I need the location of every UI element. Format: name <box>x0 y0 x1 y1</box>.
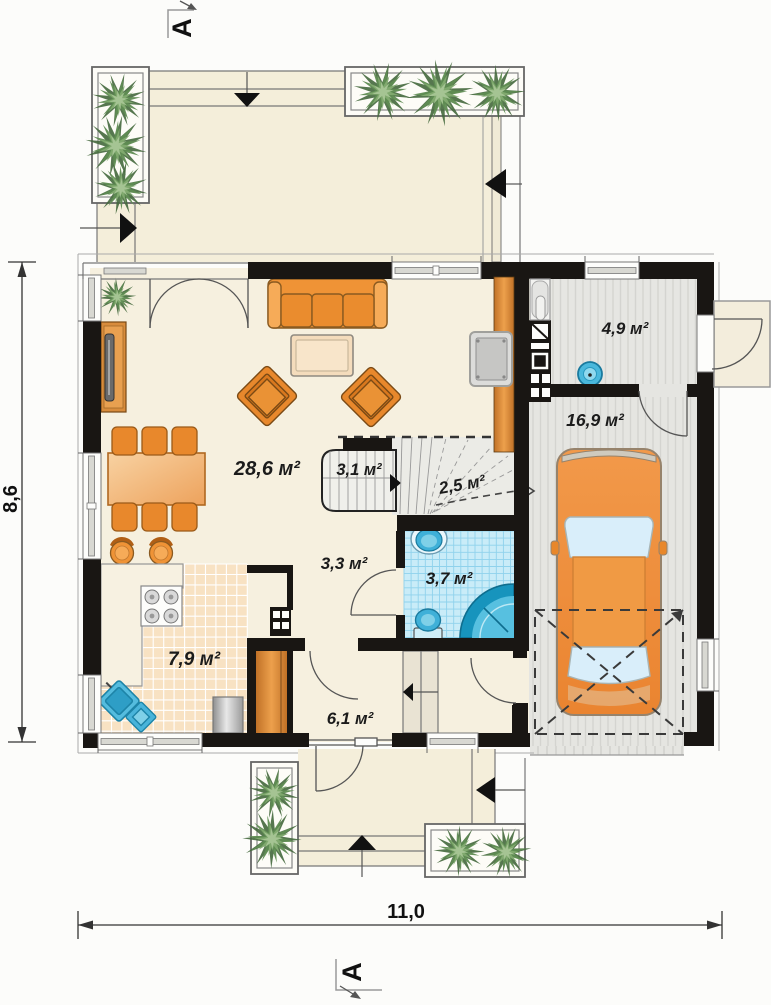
svg-text:A: A <box>337 962 367 982</box>
svg-text:3,3 м²: 3,3 м² <box>321 554 369 573</box>
svg-text:16,9 м²: 16,9 м² <box>566 410 625 430</box>
svg-text:7,9 м²: 7,9 м² <box>168 649 221 670</box>
svg-text:6,1 м²: 6,1 м² <box>327 709 375 728</box>
svg-text:3,7 м²: 3,7 м² <box>426 569 474 588</box>
svg-text:8,6: 8,6 <box>0 485 22 513</box>
svg-text:4,9 м²: 4,9 м² <box>601 319 650 338</box>
svg-text:11,0: 11,0 <box>387 901 425 923</box>
svg-text:A: A <box>167 18 197 38</box>
svg-text:28,6 м²: 28,6 м² <box>233 458 301 480</box>
svg-text:3,1 м²: 3,1 м² <box>336 461 382 479</box>
